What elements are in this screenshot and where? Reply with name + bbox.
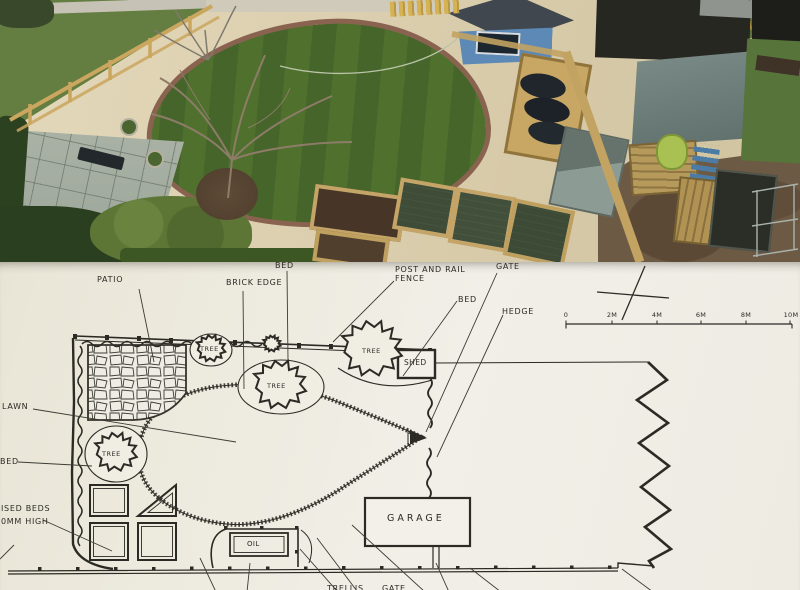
bare-tree-center bbox=[152, 55, 352, 198]
plan-linework bbox=[0, 262, 800, 590]
garden-hose bbox=[280, 38, 458, 73]
label-garage: GARAGE bbox=[387, 514, 445, 524]
photo-linework bbox=[0, 0, 800, 262]
label-oil: OIL bbox=[247, 539, 260, 549]
label-bed-top: BED bbox=[275, 262, 294, 271]
label-lawn: LAWN bbox=[2, 402, 28, 412]
label-tree: TREE bbox=[362, 346, 381, 356]
garden-design-composite: PATIO BRICK EDGE BED POST AND RAIL FENCE… bbox=[0, 0, 800, 590]
label-trellis-clipped: TRELLIS bbox=[327, 584, 364, 590]
label-tree: TREE bbox=[267, 381, 286, 391]
label-bed-left: BED bbox=[0, 457, 19, 467]
label-patio: PATIO bbox=[97, 275, 123, 285]
label-tree: TREE bbox=[102, 449, 121, 459]
gate-marker bbox=[410, 430, 427, 444]
label-raised-beds: ISED BEDS 0MM HIGH bbox=[1, 502, 50, 528]
oil-tank-plan bbox=[211, 529, 311, 568]
garden-plan-sketch: PATIO BRICK EDGE BED POST AND RAIL FENCE… bbox=[0, 262, 800, 590]
label-shed: SHED bbox=[404, 358, 427, 368]
label-bed-right: BED bbox=[458, 295, 477, 305]
label-brick-edge: BRICK EDGE bbox=[226, 278, 282, 288]
label-line: POST AND RAIL bbox=[395, 265, 465, 274]
label-post-and-rail-fence: POST AND RAIL FENCE bbox=[395, 265, 465, 283]
hedge-scribble-right bbox=[427, 378, 432, 498]
label-gate: GATE bbox=[496, 262, 520, 272]
bottom-fence bbox=[8, 568, 618, 574]
scale-tick-label: 2M bbox=[602, 310, 622, 320]
scale-tick-label: 8M bbox=[736, 310, 756, 320]
greenhouse-frame bbox=[752, 184, 798, 257]
scale-bar bbox=[566, 321, 792, 329]
label-line: FENCE bbox=[395, 274, 425, 283]
shed-to-hedge-line bbox=[434, 362, 648, 363]
zigzag-hedge bbox=[637, 362, 671, 568]
scale-tick-label: 10M bbox=[781, 310, 800, 320]
raised-beds-plan bbox=[90, 485, 176, 560]
aerial-photo bbox=[0, 0, 800, 262]
hedge-scribble-left bbox=[78, 346, 82, 546]
label-gate-clipped: GATE bbox=[382, 584, 406, 590]
scale-tick-label: 4M bbox=[647, 310, 667, 320]
scale-tick-label: 0 bbox=[556, 310, 576, 320]
label-line: ISED BEDS bbox=[1, 504, 50, 513]
label-tree: TREE bbox=[200, 344, 219, 354]
patio-outline bbox=[88, 345, 186, 420]
scale-tick-label: 6M bbox=[691, 310, 711, 320]
label-hedge: HEDGE bbox=[502, 307, 534, 317]
label-line: 0MM HIGH bbox=[1, 517, 49, 526]
